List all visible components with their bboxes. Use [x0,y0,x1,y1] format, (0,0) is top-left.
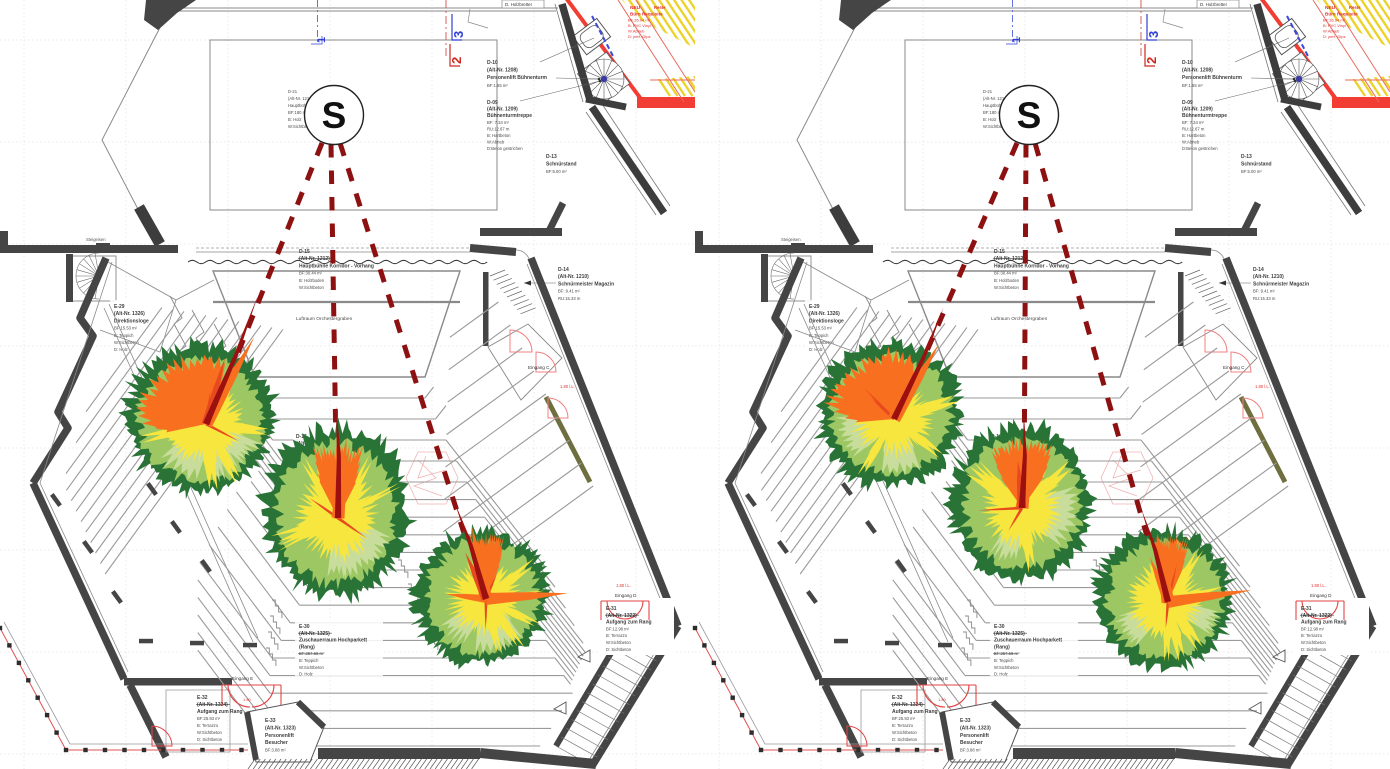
svg-text:S: S [1017,95,1042,136]
svg-text:S: S [322,95,347,136]
